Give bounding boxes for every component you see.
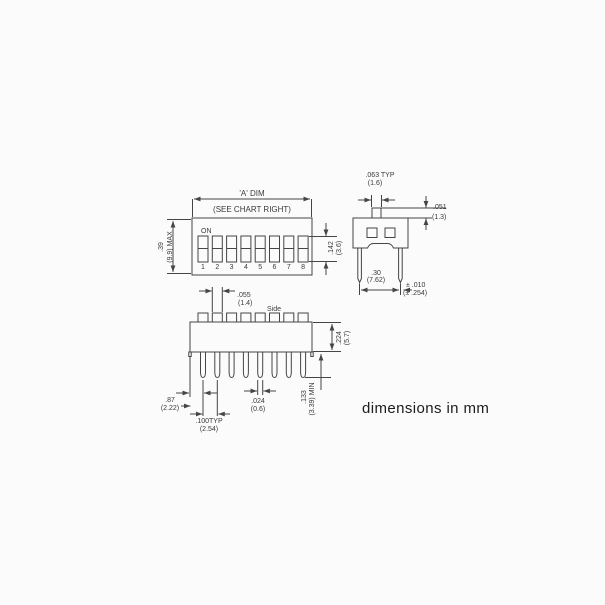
pin [243,352,248,378]
pin [215,352,220,378]
side-view [176,287,341,416]
first-pin-in: .87 [165,397,175,404]
pin-span-in: .30 [371,270,381,277]
actuator-bump [227,313,237,322]
units-note: dimensions in mm [362,400,489,417]
pin [358,248,362,283]
switch-number: 4 [244,264,248,271]
pin-pitch-in: .100TYP [195,418,223,425]
pin-span-mm: (7.62) [367,277,385,284]
actuator-width-mm: (1.6) [368,180,382,187]
switch-window [367,228,377,238]
pin-width-mm: (0.6) [251,406,265,413]
actuator-bump [255,313,265,322]
height-dim-in: .39 [158,242,165,252]
pin [399,248,403,283]
actuator-bump [284,313,294,322]
switch-number: 1 [201,264,205,271]
side-label: Side [267,306,281,313]
see-chart-label: (SEE CHART RIGHT) [213,205,291,214]
body-height-mm: (5.7) [344,331,351,345]
bump-width-mm: (1.4) [238,300,252,307]
slot-height-dim-in: .142 [328,241,335,255]
bump-width-in: .055 [237,292,251,299]
body-height-in: .224 [336,331,343,345]
switch-number: 7 [287,264,291,271]
a-dim-label: 'A' DIM [239,189,265,198]
actuator-height-mm: (1.3) [432,214,446,221]
standoff [311,352,313,357]
switch-number: 3 [230,264,234,271]
on-label: ON [201,228,212,235]
height-dim-mm: (9.9) MAX [167,231,174,263]
actuator-bump [241,313,251,322]
slot-height-dim-mm: (3.6) [336,241,343,255]
actuator-height-in: .051 [433,204,447,211]
standoff [189,352,191,357]
dip-switch-technical-drawing: 12345678 [0,0,605,605]
pin-length-mm: (3.39) MIN [309,382,316,415]
switch-window [385,228,395,238]
pin [272,352,277,378]
tolerance-mm: (± .254) [403,290,427,297]
pin [258,352,263,378]
actuator-bump [270,313,280,322]
switch-number: 5 [258,264,262,271]
actuator-width-in: .063 TYP [365,172,394,179]
scanned-datasheet-page: 12345678 [0,0,605,605]
pin [286,352,291,378]
pin [301,352,306,378]
switch-number: 8 [301,264,305,271]
tolerance-in: ± .010 [406,282,426,289]
end-view-body [353,218,408,248]
pin-length-in: .133 [301,390,308,404]
actuator-bump [298,313,308,322]
pin [201,352,206,378]
actuator-bump [212,313,222,322]
pin [229,352,234,378]
switch-number: 6 [273,264,277,271]
first-pin-mm: (2.22) [161,405,179,412]
switch-number: 2 [215,264,219,271]
pin-width-in: .024 [251,398,265,405]
side-view-body [190,322,312,352]
actuator [372,208,381,218]
pin-pitch-mm: (2.54) [200,426,218,433]
actuator-bump [198,313,208,322]
